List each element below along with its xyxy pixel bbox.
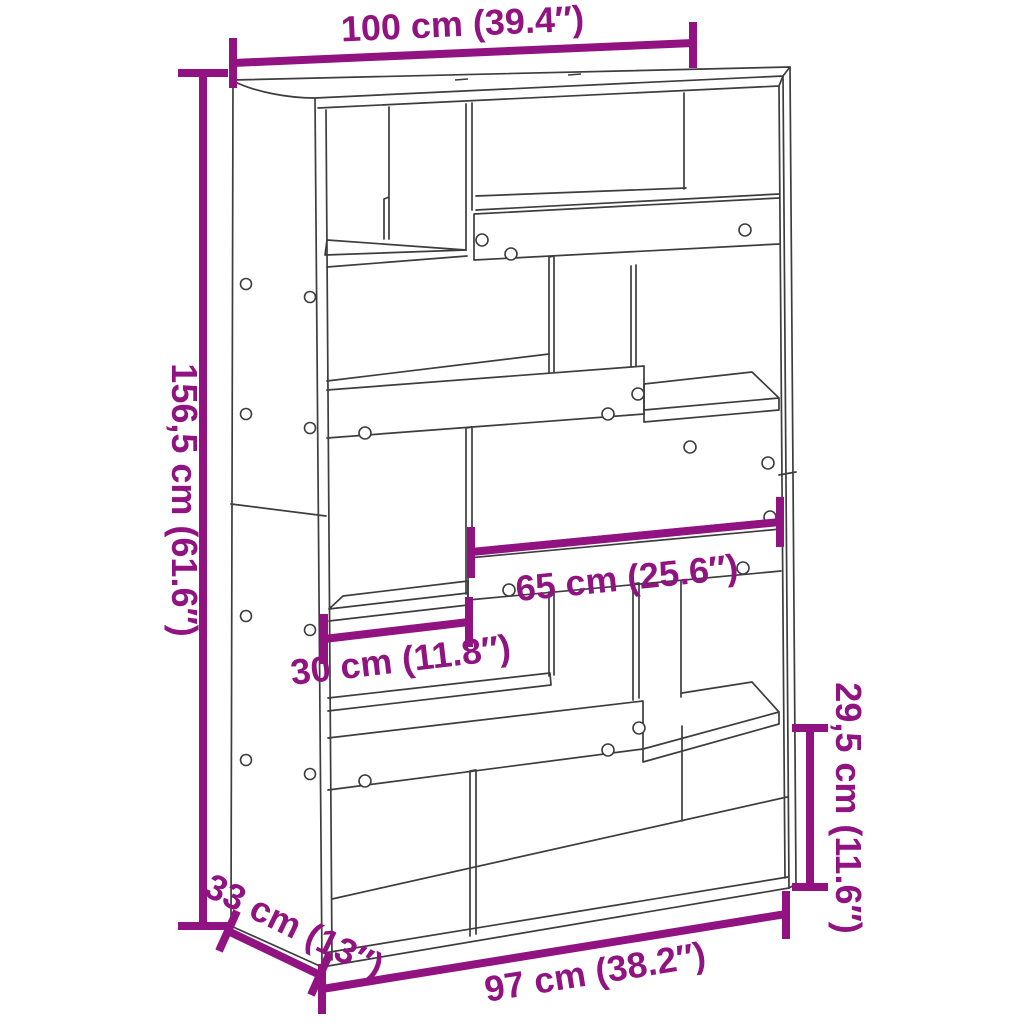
dimension-lower-right-height-label: 29,5 cm (11.6″) — [828, 682, 869, 933]
dimension-bottom-width: 97 cm (38.2″) — [322, 891, 786, 1014]
dimension-top-width-label: 100 cm (39.4″) — [340, 0, 585, 50]
dimension-diagram: 100 cm (39.4″) 156,5 cm (61.6″) 65 cm (2… — [0, 0, 1024, 1024]
cam-lock-holes — [241, 224, 777, 787]
dimension-middle-shelf-width-label: 65 cm (25.6″) — [514, 546, 740, 609]
dimension-depth: 33 cm (13″) — [199, 865, 391, 995]
dimension-lower-right-height: 29,5 cm (11.6″) — [792, 682, 869, 933]
dimension-left-shelf-width: 30 cm (11.8″) — [288, 597, 513, 693]
bookcase-line-drawing: 100 cm (39.4″) 156,5 cm (61.6″) 65 cm (2… — [0, 0, 1024, 1024]
dimension-height: 156,5 cm (61.6″) — [164, 73, 228, 926]
bookcase-shelves — [325, 93, 781, 936]
dimension-height-label: 156,5 cm (61.6″) — [164, 363, 205, 636]
